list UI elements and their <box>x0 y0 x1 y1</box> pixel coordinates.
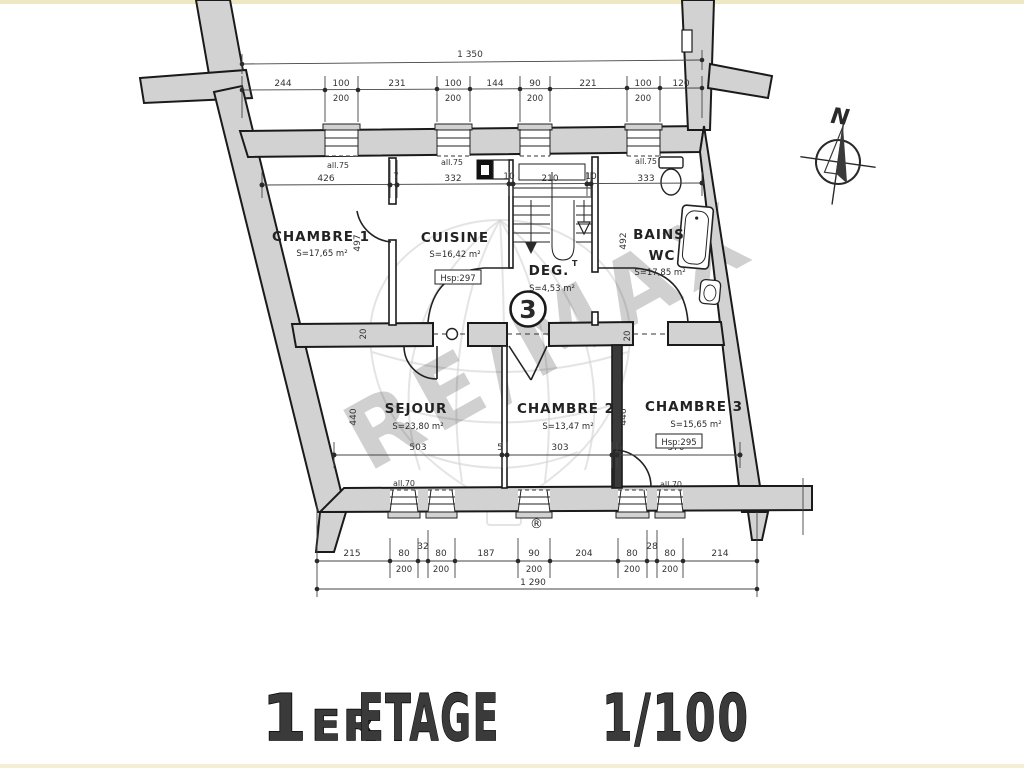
dim-top-row: 244 100 200 231 100 200 144 90 200 221 1… <box>240 76 705 122</box>
dim-label: 303 <box>551 443 568 453</box>
dim-label: 80 <box>626 549 638 559</box>
dim-label: 5 <box>497 443 503 453</box>
floor-plan-page: RE/MAX ® <box>0 0 1024 768</box>
dim-label: 20 <box>623 331 633 342</box>
dim-label: 200 <box>396 565 412 575</box>
wall-left-extension <box>316 512 346 552</box>
dim-label: 426 <box>317 174 334 184</box>
room-area-sejour: S=23,80 m² <box>392 422 443 432</box>
room-area-chambre3: S=15,65 m² <box>670 420 721 430</box>
dim-label: 215 <box>343 549 360 559</box>
dim-label: 80 <box>664 549 676 559</box>
room-name-deg: DEG. <box>529 263 570 279</box>
room-name-chambre2: CHAMBRE 2 <box>517 401 615 417</box>
dim-label: 210 <box>541 174 558 184</box>
dim-label: 200 <box>662 565 678 575</box>
dim-label: 503 <box>409 443 426 453</box>
dim-label: 200 <box>635 94 651 104</box>
dim-label: 200 <box>624 565 640 575</box>
window <box>435 124 472 156</box>
dim-label: 1 350 <box>457 50 483 60</box>
dim-label: 7 <box>393 172 399 182</box>
floor-plan-drawing: RE/MAX ® <box>0 0 1024 768</box>
sill-label: all.75 <box>441 158 463 167</box>
room-area-cuisine: S=16,42 m² <box>429 250 480 260</box>
dim-label: 492 <box>619 232 629 249</box>
dim-label: 90 <box>529 79 541 89</box>
title-scale: 1/100 <box>602 682 750 756</box>
north-arrow: N <box>794 104 881 210</box>
dim-overall-bottom: 1 290 <box>315 578 760 591</box>
wall-right-extension <box>748 512 768 540</box>
dim-label: 333 <box>637 174 654 184</box>
dim-label: 5 <box>617 443 623 453</box>
hsp-chambre3: Hsp:295 <box>661 438 696 448</box>
dim-label: 32 <box>417 542 428 552</box>
column-circle <box>447 329 458 340</box>
dim-label: 144 <box>486 79 503 89</box>
dim-label: 1 290 <box>520 578 546 588</box>
scan-edge-top <box>0 0 1024 4</box>
dim-label: 100 <box>634 79 651 89</box>
hsp-cuisine: Hsp:297 <box>440 274 475 284</box>
dim-label: 221 <box>579 79 596 89</box>
room-name-cuisine: CUISINE <box>421 230 489 246</box>
toilet <box>659 157 683 195</box>
room-name-sejour: SEJOUR <box>385 401 448 417</box>
dim-overall-top: 1 350 <box>240 50 705 74</box>
dim-label: 20 <box>359 329 369 340</box>
bottom-windows <box>388 490 685 518</box>
room-area-chambre1: S=17,65 m² <box>296 249 347 259</box>
window <box>625 124 662 156</box>
dim-label: 214 <box>711 549 728 559</box>
dim-label: 200 <box>527 94 543 104</box>
room-name-bains: BAINS <box>633 227 685 243</box>
partition-ch1-cuisine-lower <box>389 240 396 325</box>
kitchen-sink-basin <box>481 165 489 175</box>
title-number: 1 <box>262 682 310 756</box>
window <box>426 490 457 518</box>
dim-label: 200 <box>445 94 461 104</box>
dim-label: 100 <box>332 79 349 89</box>
wall-stub-top-left-vertical <box>196 0 244 80</box>
stair-rail <box>552 172 574 260</box>
dim-label: 120 <box>672 79 689 89</box>
window <box>616 490 649 518</box>
sill-label: all.70 <box>393 479 415 488</box>
dim-label: 446 <box>619 408 629 425</box>
dim-label: 231 <box>388 79 405 89</box>
dim-label: 440 <box>349 408 359 425</box>
wall-stub-top-right-horizontal <box>708 64 772 98</box>
dim-label: 28 <box>646 542 658 552</box>
watermark-registered: ® <box>530 517 543 532</box>
partition-sejour-ch2 <box>502 346 507 488</box>
north-label: N <box>829 104 851 131</box>
room-name-deg-sup: T <box>572 259 578 268</box>
plan-title: 1ER ETAGE 1/100 <box>262 682 750 756</box>
window <box>323 124 360 156</box>
scan-edge-bottom <box>0 764 1024 768</box>
dim-label: 10 <box>585 172 597 182</box>
room-name-chambre3: CHAMBRE 3 <box>645 399 743 415</box>
dim-label: 187 <box>477 549 494 559</box>
dim-label: 200 <box>433 565 449 575</box>
bidet <box>699 279 721 305</box>
dim-label: 200 <box>526 565 542 575</box>
middle-wall-seg3 <box>549 322 633 346</box>
window <box>655 490 685 518</box>
room-name-wc: WC <box>649 248 676 264</box>
sill-label: all.75 <box>327 161 349 170</box>
dim-label: 332 <box>444 174 461 184</box>
sill-label: all.70 <box>660 480 682 489</box>
sill-label: all.75 <box>635 157 657 166</box>
room-area-bains: S=17,85 m² <box>634 268 685 278</box>
dim-label: 10 <box>503 172 515 182</box>
dim-label: 80 <box>398 549 410 559</box>
middle-wall-seg2 <box>468 323 507 346</box>
middle-wall-seg4 <box>668 322 724 345</box>
window <box>388 490 420 518</box>
wall-stub-notch <box>682 30 692 52</box>
dim-label: 90 <box>528 549 540 559</box>
compass-needle <box>835 126 855 183</box>
wall-right <box>700 126 764 512</box>
dim-label: 244 <box>274 79 291 89</box>
dim-label: 200 <box>333 94 349 104</box>
title-word: ETAGE <box>358 682 500 756</box>
partition-deg-bains-lower <box>592 312 598 325</box>
dim-label: 80 <box>435 549 447 559</box>
window <box>516 490 552 518</box>
dim-label: 204 <box>575 549 592 559</box>
room-area-chambre2: S=13,47 m² <box>542 422 593 432</box>
level-badge: 3 <box>519 295 536 324</box>
dim-label: 100 <box>444 79 461 89</box>
window <box>518 124 552 156</box>
room-name-chambre1: CHAMBRE 1 <box>272 229 370 245</box>
